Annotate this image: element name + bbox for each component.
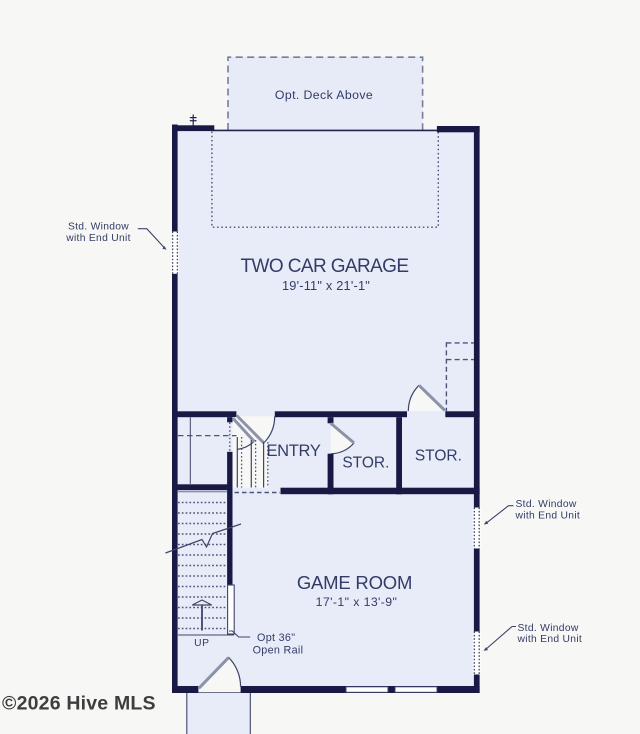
- svg-text:19'-11" x 21'-1": 19'-11" x 21'-1": [282, 278, 370, 293]
- svg-text:Std. Window: Std. Window: [516, 499, 577, 510]
- svg-text:with End Unit: with End Unit: [65, 233, 131, 244]
- svg-text:UP: UP: [194, 638, 209, 649]
- svg-text:Std. Window: Std. Window: [518, 623, 579, 634]
- svg-text:Std. Window: Std. Window: [68, 222, 129, 233]
- svg-text:GAME ROOM: GAME ROOM: [297, 572, 412, 593]
- svg-text:17'-1" x 13'-9": 17'-1" x 13'-9": [316, 595, 398, 609]
- svg-text:ENTRY: ENTRY: [266, 442, 320, 460]
- svg-text:TWO CAR GARAGE: TWO CAR GARAGE: [241, 256, 409, 277]
- svg-text:with End Unit: with End Unit: [517, 634, 583, 645]
- svg-text:Opt 36": Opt 36": [257, 632, 295, 644]
- svg-text:©2026 Hive MLS: ©2026 Hive MLS: [2, 693, 156, 715]
- svg-text:Opt. Deck Above: Opt. Deck Above: [275, 88, 373, 102]
- svg-text:STOR.: STOR.: [415, 447, 462, 464]
- svg-text:Open Rail: Open Rail: [253, 645, 304, 657]
- svg-text:with End Unit: with End Unit: [515, 510, 581, 521]
- svg-text:STOR.: STOR.: [342, 455, 389, 472]
